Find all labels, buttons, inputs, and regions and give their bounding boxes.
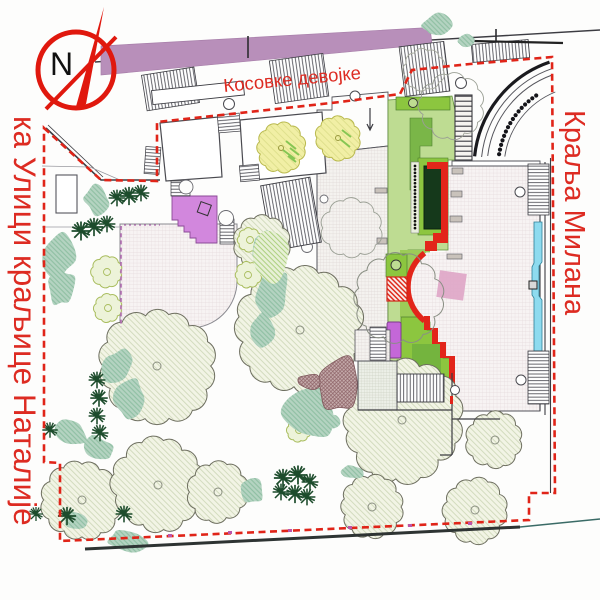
svg-text:Краља Милана: Краља Милана bbox=[558, 110, 590, 316]
svg-text:ка Улици краљице Наталије: ка Улици краљице Наталије bbox=[7, 116, 43, 526]
svg-text:N: N bbox=[50, 46, 73, 82]
